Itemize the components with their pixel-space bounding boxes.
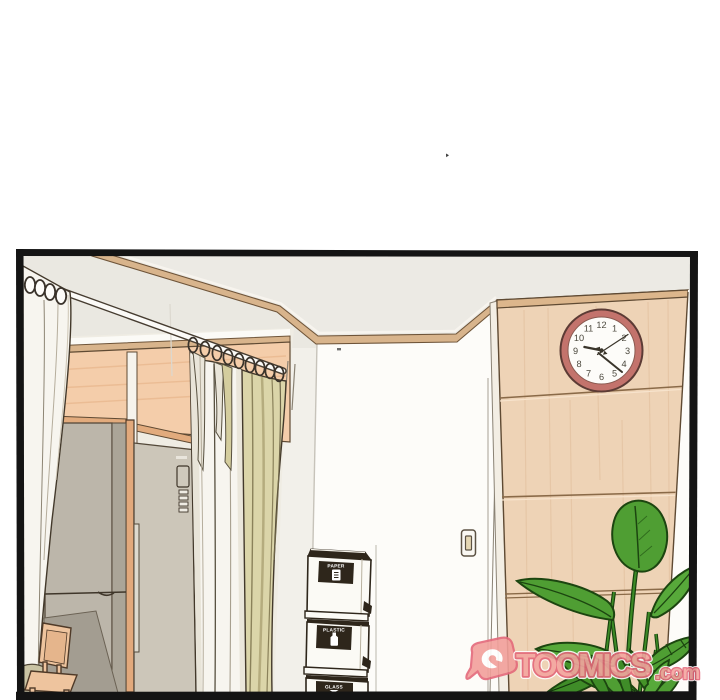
- svg-text:9: 9: [573, 346, 578, 356]
- svg-text:.com: .com: [655, 662, 700, 684]
- svg-text:TOOMICS: TOOMICS: [516, 647, 651, 683]
- svg-text:6: 6: [599, 372, 604, 382]
- svg-text:11: 11: [584, 324, 594, 334]
- svg-text:3: 3: [625, 346, 630, 356]
- svg-text:1: 1: [612, 324, 617, 334]
- svg-text:7: 7: [586, 369, 591, 379]
- svg-text:12: 12: [596, 320, 606, 330]
- svg-text:GLASS: GLASS: [325, 685, 344, 691]
- svg-text:10: 10: [574, 333, 584, 343]
- svg-text:8: 8: [576, 359, 581, 369]
- svg-text:5: 5: [612, 369, 617, 379]
- svg-text:4: 4: [621, 359, 626, 369]
- svg-text:PAPER: PAPER: [327, 564, 345, 570]
